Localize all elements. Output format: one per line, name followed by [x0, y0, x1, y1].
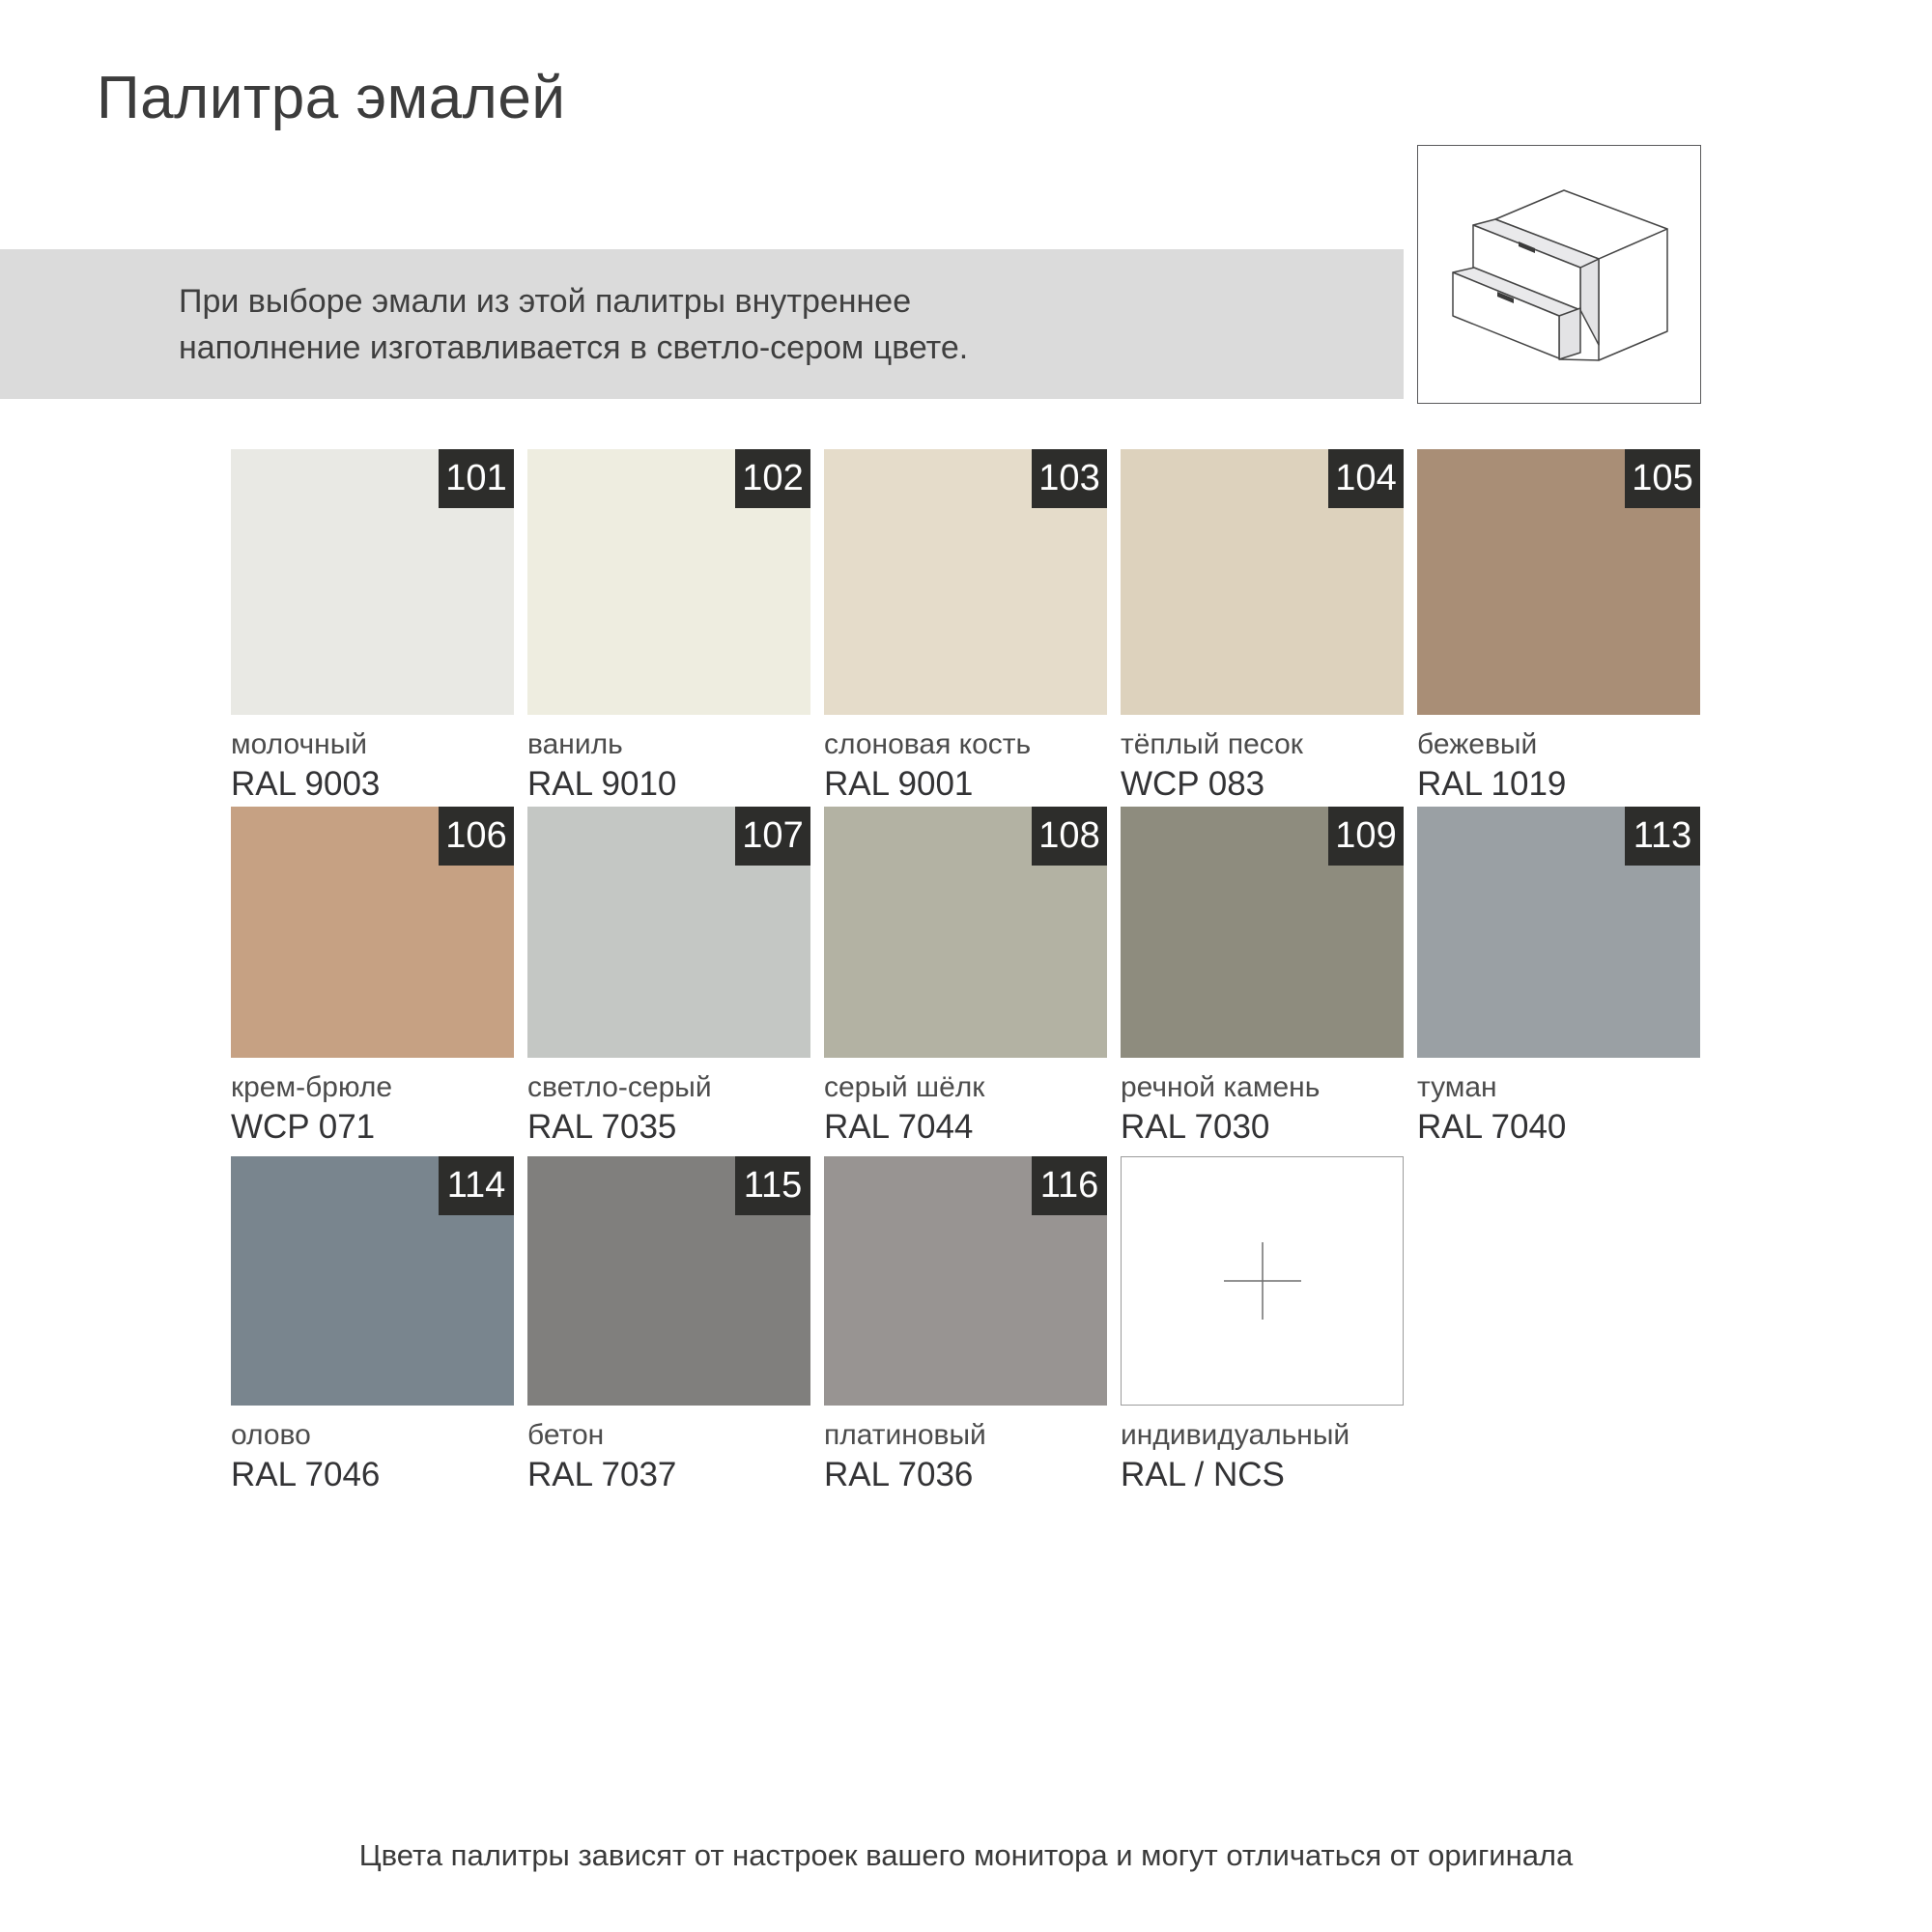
swatch-number-badge: 105	[1625, 449, 1700, 508]
swatch-tile-101: 101 молочный RAL 9003	[231, 449, 514, 806]
swatch-number-badge: 107	[735, 807, 810, 866]
color-chip: 109	[1121, 807, 1404, 1058]
swatch-tile-custom: индивидуальный RAL / NCS	[1121, 1156, 1404, 1496]
swatch-code: RAL 7044	[824, 1106, 1107, 1149]
swatch-name: тёплый песок	[1121, 726, 1404, 763]
swatch-number-badge: 103	[1032, 449, 1107, 508]
swatch-number-badge: 108	[1032, 807, 1107, 866]
color-chip: 104	[1121, 449, 1404, 715]
swatch-tile-102: 102 ваниль RAL 9010	[527, 449, 810, 806]
swatch-code: RAL 1019	[1417, 763, 1700, 806]
swatch-tile-103: 103 слоновая кость RAL 9001	[824, 449, 1107, 806]
swatch-number-badge: 104	[1328, 449, 1404, 508]
swatch-code: RAL 7036	[824, 1454, 1107, 1496]
color-chip: 106	[231, 807, 514, 1058]
color-chip: 115	[527, 1156, 810, 1406]
swatch-code: RAL / NCS	[1121, 1454, 1404, 1496]
swatch-name: платиновый	[824, 1417, 1107, 1454]
swatch-number-badge: 109	[1328, 807, 1404, 866]
swatch-name: туман	[1417, 1069, 1700, 1106]
info-banner-text: При выборе эмали из этой палитры внутрен…	[179, 278, 968, 371]
swatch-row-2: 106 крем-брюле WCP 071 107 светло-серый …	[231, 807, 1700, 1149]
swatch-tile-106: 106 крем-брюле WCP 071	[231, 807, 514, 1149]
swatch-tile-113: 113 туман RAL 7040	[1417, 807, 1700, 1149]
swatch-name: слоновая кость	[824, 726, 1107, 763]
color-chip: 108	[824, 807, 1107, 1058]
swatch-row-3: 114 олово RAL 7046 115 бетон RAL 7037 11…	[231, 1156, 1404, 1496]
swatch-code: WCP 083	[1121, 763, 1404, 806]
swatch-tile-115: 115 бетон RAL 7037	[527, 1156, 810, 1496]
swatch-number-badge: 114	[439, 1156, 514, 1215]
swatch-code: RAL 9010	[527, 763, 810, 806]
color-chip: 116	[824, 1156, 1107, 1406]
swatch-tile-107: 107 светло-серый RAL 7035	[527, 807, 810, 1149]
swatch-name: крем-брюле	[231, 1069, 514, 1106]
swatch-code: RAL 7030	[1121, 1106, 1404, 1149]
plus-icon	[1223, 1241, 1302, 1321]
color-chip: 113	[1417, 807, 1700, 1058]
color-chip: 102	[527, 449, 810, 715]
custom-color-chip	[1121, 1156, 1404, 1406]
swatch-name: бетон	[527, 1417, 810, 1454]
swatch-name: речной камень	[1121, 1069, 1404, 1106]
color-chip: 114	[231, 1156, 514, 1406]
color-chip: 103	[824, 449, 1107, 715]
swatch-tile-109: 109 речной камень RAL 7030	[1121, 807, 1404, 1149]
swatch-number-badge: 102	[735, 449, 810, 508]
swatch-code: RAL 9003	[231, 763, 514, 806]
palette-page: Палитра эмалей При выборе эмали из этой …	[0, 0, 1932, 1932]
swatch-number-badge: 113	[1625, 807, 1700, 866]
swatch-name: серый шёлк	[824, 1069, 1107, 1106]
info-banner-line-2: наполнение изготавливается в светло-серо…	[179, 325, 968, 371]
swatch-code: RAL 9001	[824, 763, 1107, 806]
swatch-code: RAL 7037	[527, 1454, 810, 1496]
swatch-tile-114: 114 олово RAL 7046	[231, 1156, 514, 1496]
color-chip: 101	[231, 449, 514, 715]
swatch-row-1: 101 молочный RAL 9003 102 ваниль RAL 901…	[231, 449, 1700, 806]
info-banner: При выборе эмали из этой палитры внутрен…	[0, 249, 1404, 399]
swatch-name: молочный	[231, 726, 514, 763]
swatch-code: RAL 7046	[231, 1454, 514, 1496]
swatch-name: ваниль	[527, 726, 810, 763]
swatch-code: RAL 7040	[1417, 1106, 1700, 1149]
swatch-code: RAL 7035	[527, 1106, 810, 1149]
page-title: Палитра эмалей	[97, 64, 565, 132]
swatch-tile-116: 116 платиновый RAL 7036	[824, 1156, 1107, 1496]
swatch-name: светло-серый	[527, 1069, 810, 1106]
swatch-number-badge: 115	[735, 1156, 810, 1215]
swatch-number-badge: 106	[439, 807, 514, 866]
color-chip: 105	[1417, 449, 1700, 715]
footer-disclaimer: Цвета палитры зависят от настроек вашего…	[0, 1838, 1932, 1873]
swatch-name: олово	[231, 1417, 514, 1454]
swatch-number-badge: 116	[1032, 1156, 1107, 1215]
swatch-tile-108: 108 серый шёлк RAL 7044	[824, 807, 1107, 1149]
swatch-code: WCP 071	[231, 1106, 514, 1149]
color-chip: 107	[527, 807, 810, 1058]
info-banner-line-1: При выборе эмали из этой палитры внутрен…	[179, 278, 968, 325]
swatch-tile-104: 104 тёплый песок WCP 083	[1121, 449, 1404, 806]
drawer-cabinet-icon	[1417, 145, 1701, 404]
swatch-number-badge: 101	[439, 449, 514, 508]
swatch-name: бежевый	[1417, 726, 1700, 763]
swatch-name: индивидуальный	[1121, 1417, 1404, 1454]
swatch-tile-105: 105 бежевый RAL 1019	[1417, 449, 1700, 806]
